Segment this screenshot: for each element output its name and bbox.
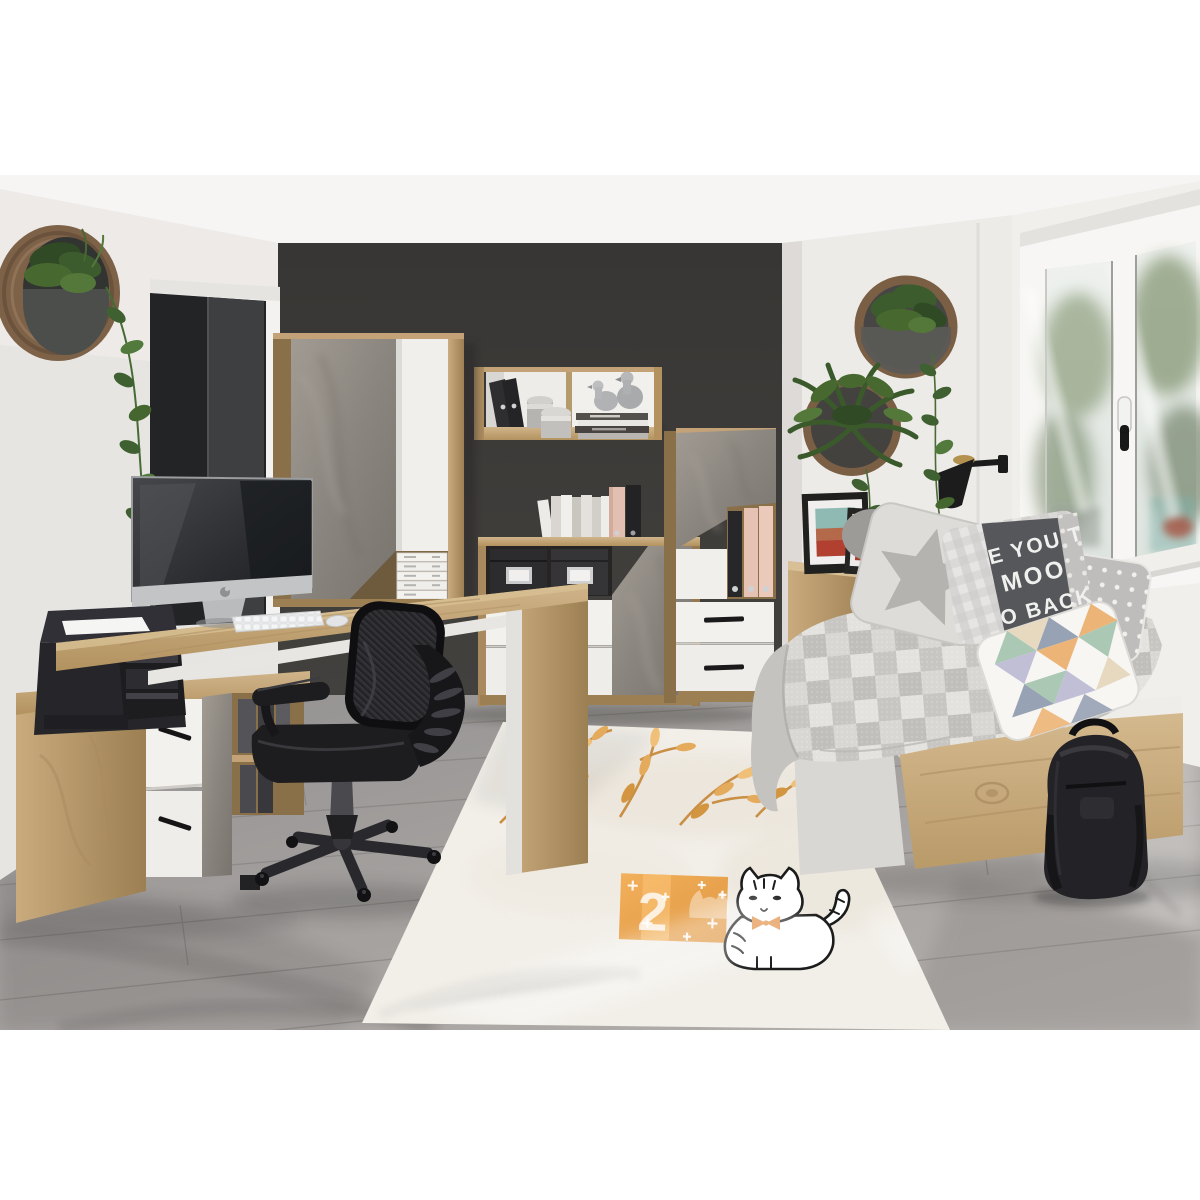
wardrobe-oak-side [448, 337, 464, 607]
cabinet-binder-niche [727, 503, 776, 599]
book-stack [575, 413, 649, 439]
room-scene: 2 [0, 175, 1200, 1030]
furniture-showroom-photo: 2 [0, 0, 1200, 1200]
cabinet-drawer-2 [146, 791, 202, 877]
white-storage-boxes [397, 553, 447, 599]
cabinet-drawer-1 [676, 602, 774, 642]
cabinet-white-door [676, 549, 727, 599]
tall-cabinet [664, 428, 776, 703]
black-storage-box [490, 549, 547, 595]
wall-shelf [474, 367, 662, 440]
wardrobe-white-door [396, 339, 448, 551]
cabinet-concrete-panel [202, 693, 232, 877]
